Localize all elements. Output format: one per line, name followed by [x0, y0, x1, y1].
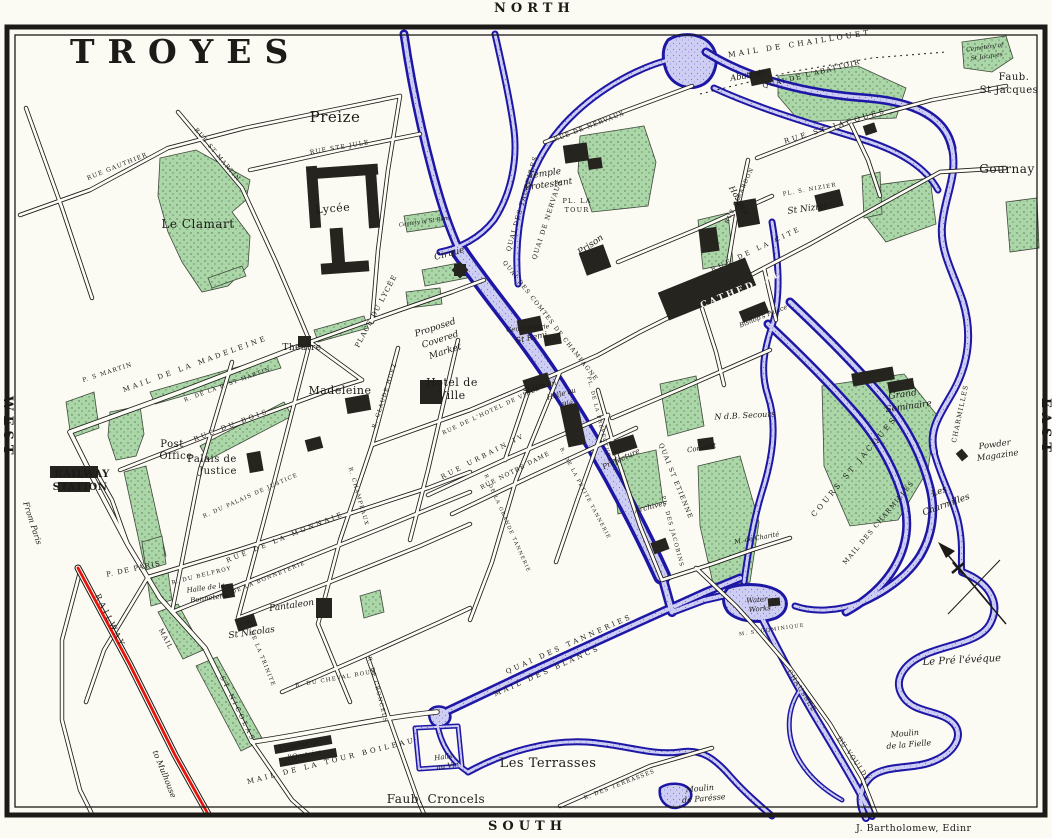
street-surface	[26, 108, 92, 298]
building	[365, 170, 380, 229]
map-label: From Paris	[21, 500, 44, 546]
map-label: R. CHAMPEAUX	[347, 467, 370, 527]
building	[587, 157, 602, 170]
building	[246, 451, 263, 473]
building	[698, 227, 719, 253]
cartographer-credit: J. Bartholomew, Edinr	[856, 823, 972, 834]
map-label: Le Clamart	[161, 217, 234, 231]
building	[863, 122, 878, 135]
map-label: Gournay	[979, 162, 1034, 176]
compass-north-arrow	[938, 542, 955, 558]
waterway-fill	[437, 578, 740, 716]
map-label: Lycée	[315, 201, 351, 217]
map-label: R. DU PALAIS DE JUSTICE	[202, 472, 299, 520]
compass-label-west: WEST	[0, 396, 15, 460]
building	[321, 260, 370, 274]
map-label: R. CLAUDE HUEZ	[372, 362, 399, 429]
building	[316, 598, 332, 618]
map-label: Madeleine	[308, 384, 371, 397]
map-label: Post	[160, 439, 184, 450]
map-label: Les Terrasses	[500, 756, 597, 771]
map-label: STATION	[53, 482, 108, 493]
map-label: RAILWAY	[54, 469, 110, 480]
map-label: RUE DE LA MONNAIE	[225, 510, 345, 565]
map-of-troyes: PreizeLe ClamartLycéeCemety of St RemiCi…	[0, 0, 1052, 838]
waterway	[861, 572, 995, 818]
building	[454, 264, 466, 276]
map-label: P. S MARTIN	[82, 361, 134, 384]
map-label: Justice	[198, 466, 237, 477]
street-surface	[250, 134, 420, 170]
waterway	[663, 35, 716, 88]
waterway-fill	[762, 618, 872, 816]
map-label: Faub.	[999, 72, 1030, 83]
map-label: MAIL DE CHAILLOUET	[727, 28, 871, 60]
map-label: au Vin	[436, 760, 460, 771]
map-label: Theatre	[282, 343, 321, 353]
building	[305, 436, 324, 452]
map-label: de la Fielle	[886, 738, 932, 751]
waterway-fill	[861, 572, 995, 818]
map-label: PL. DES JACOBINS	[660, 495, 685, 568]
map-label: Palais de	[187, 454, 237, 465]
map-label: Pantaleon	[268, 598, 315, 614]
map-label: Convent	[686, 441, 717, 454]
park-area	[698, 456, 759, 588]
map-label: QUAI DES TANNERIES	[505, 612, 634, 675]
park-area	[1006, 198, 1039, 252]
map-label: TOUR	[565, 206, 590, 214]
map-label: St Nizier	[787, 201, 829, 217]
map-label: Preize	[310, 108, 361, 126]
building	[345, 394, 371, 414]
map-label: St Jacques	[980, 85, 1039, 96]
compass-label-north: NORTH	[494, 1, 575, 16]
compass-rose	[938, 542, 1006, 624]
map-label: Faub. Croncels	[387, 792, 485, 806]
street-surface	[700, 302, 724, 385]
building	[563, 142, 589, 163]
map-label: N d.B. Secours	[713, 409, 775, 421]
map-label: R. DES TERRASSES	[583, 769, 656, 802]
map-canvas: PreizeLe ClamartLycéeCemety of St RemiCi…	[0, 0, 1052, 838]
park-area	[660, 376, 704, 436]
map-label: Hotel de	[426, 376, 478, 389]
compass-label-south: SOUTH	[488, 819, 567, 834]
map-label: Moulin	[889, 728, 919, 740]
park-area	[360, 590, 384, 618]
building	[956, 449, 969, 462]
map-label: PL. LA	[562, 197, 591, 205]
street-surface	[410, 340, 458, 540]
map-title: TROYES	[70, 32, 301, 71]
map-label: R. DE CRONCELS	[366, 656, 388, 723]
map-label: Ville	[437, 389, 465, 402]
compass-label-east: EAST	[1038, 398, 1052, 457]
